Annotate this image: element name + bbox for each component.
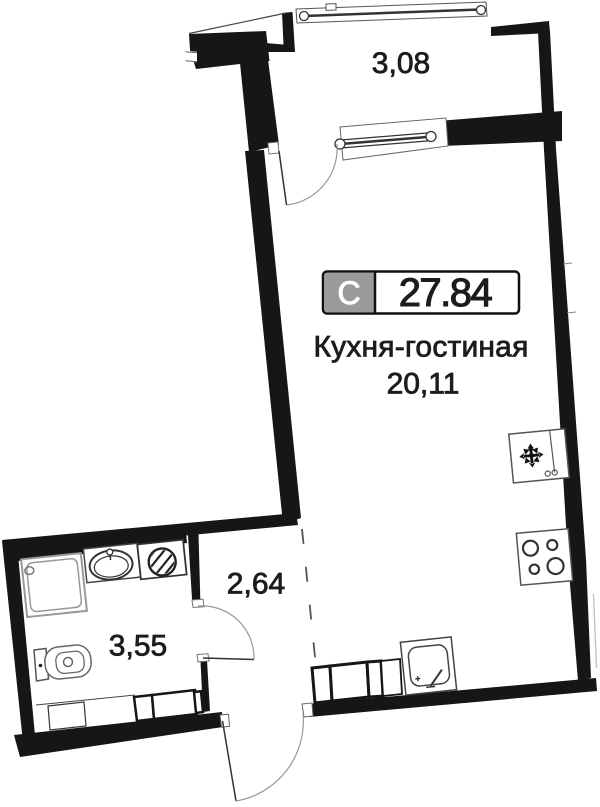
svg-text:2,64: 2,64 — [227, 568, 285, 601]
svg-text:27.84: 27.84 — [399, 271, 493, 315]
svg-text:3,08: 3,08 — [372, 47, 430, 80]
svg-text:С: С — [337, 275, 360, 311]
svg-text:3,55: 3,55 — [109, 630, 167, 663]
svg-text:Кухня-гостиная: Кухня-гостиная — [313, 331, 528, 364]
svg-text:20,11: 20,11 — [387, 368, 460, 401]
